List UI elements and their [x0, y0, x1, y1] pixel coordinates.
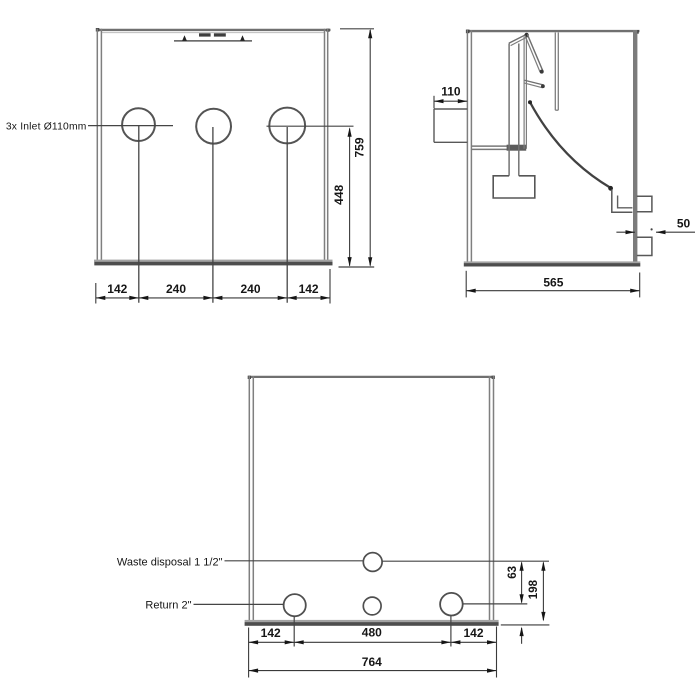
- svg-text:142: 142: [299, 282, 319, 296]
- svg-text:50: 50: [677, 217, 691, 231]
- svg-text:198: 198: [528, 579, 540, 599]
- svg-text:480: 480: [362, 626, 382, 640]
- svg-text:759: 759: [353, 137, 367, 157]
- svg-text:Waste disposal 1 1/2": Waste disposal 1 1/2": [117, 556, 223, 568]
- svg-text:565: 565: [543, 275, 563, 289]
- svg-text:240: 240: [166, 282, 186, 296]
- svg-text:448: 448: [332, 184, 346, 204]
- svg-text:Return 2": Return 2": [145, 600, 191, 612]
- svg-text:142: 142: [107, 282, 127, 296]
- svg-text:764: 764: [362, 655, 382, 669]
- svg-text:240: 240: [240, 282, 260, 296]
- svg-text:63: 63: [507, 566, 519, 579]
- svg-text:110: 110: [441, 85, 461, 99]
- svg-text:3x Inlet Ø110mm: 3x Inlet Ø110mm: [6, 122, 87, 133]
- svg-text:142: 142: [261, 626, 281, 640]
- svg-text:142: 142: [463, 626, 483, 640]
